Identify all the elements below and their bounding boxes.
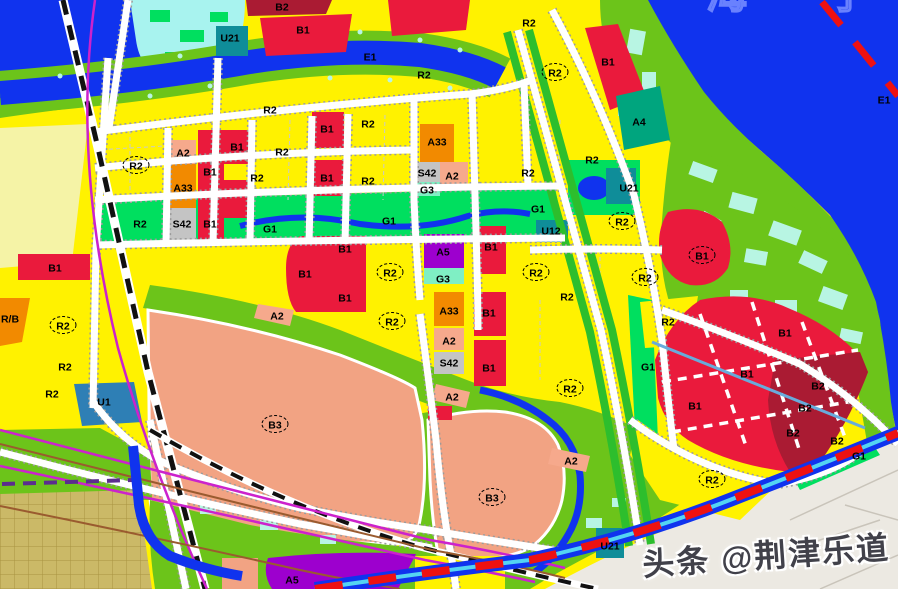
zone-label-A2: A2 (445, 392, 459, 404)
zone-label-B1: B1 (338, 293, 352, 305)
zone-label-G1: G1 (382, 216, 396, 228)
zone-label-B1: B1 (203, 167, 217, 179)
zone-label-B1: B1 (778, 328, 792, 340)
zone-label-A5: A5 (436, 247, 450, 259)
zone-label-B2: B2 (786, 428, 800, 440)
zone-label-G1: G1 (531, 204, 545, 216)
map-canvas: 海 宁 湖 U21B2B1E1R2R2R2B1A4E1R2R2A2B1B1R2B… (0, 0, 898, 589)
zone-label-A2: A2 (176, 148, 190, 160)
zone-label-B1: B1 (740, 369, 754, 381)
zone-label-B2: B2 (811, 381, 825, 393)
zone-label-A2: A2 (564, 456, 578, 468)
zone-label-G3: G3 (420, 185, 434, 197)
zone-label-U21: U21 (619, 183, 638, 195)
zone-label-R2: R2 (133, 219, 147, 231)
zone-label-R2: R2 (250, 173, 264, 185)
zone-label-G1: G1 (852, 451, 866, 463)
zone-label-B1: B1 (320, 124, 334, 136)
lake-name: 海 宁 湖 (706, 0, 898, 17)
zone-label-R2: R2 (705, 475, 719, 487)
zone-label-R-B: R/B (1, 314, 20, 326)
zone-label-B1: B1 (296, 25, 310, 37)
zone-label-B1: B1 (601, 57, 615, 69)
zone-label-A2: A2 (442, 336, 456, 348)
zone-label-B1: B1 (230, 142, 244, 154)
zone-label-R2: R2 (361, 176, 375, 188)
zone-label-B1: B1 (482, 363, 496, 375)
farmland-grid (0, 490, 152, 589)
zone-label-A33: A33 (439, 306, 458, 318)
zone-label-A33: A33 (173, 183, 192, 195)
zone-label-R2: R2 (275, 147, 289, 159)
zone-label-R2: R2 (560, 292, 574, 304)
zone-label-U21: U21 (220, 33, 239, 45)
zone-label-B1: B1 (203, 219, 217, 231)
zone-label-B1: B1 (482, 308, 496, 320)
zone-label-B1: B1 (48, 263, 62, 275)
zone-label-B2: B2 (798, 403, 812, 415)
zone-label-R2: R2 (417, 70, 431, 82)
zone-label-B1: B1 (338, 244, 352, 256)
zone-label-A5: A5 (285, 575, 299, 587)
zone-label-R2: R2 (263, 105, 277, 117)
zone-label-R2: R2 (563, 384, 577, 396)
zone-label-A2: A2 (445, 171, 459, 183)
zone-label-S42: S42 (418, 168, 437, 180)
zone-label-U21: U21 (600, 541, 619, 553)
zone-label-R2: R2 (129, 161, 143, 173)
zone-label-R2: R2 (385, 317, 399, 329)
zone-label-R2: R2 (58, 362, 72, 374)
zone-label-G1: G1 (641, 362, 655, 374)
zone-label-S42: S42 (173, 219, 192, 231)
zone-label-U12: U12 (541, 226, 560, 238)
zone-label-R2: R2 (585, 155, 599, 167)
zone-label-R2: R2 (56, 321, 70, 333)
zone-label-R2: R2 (638, 273, 652, 285)
zone-label-B2: B2 (275, 2, 289, 14)
zone-label-R2: R2 (383, 268, 397, 280)
zone-label-R2: R2 (522, 18, 536, 30)
zone-label-A2: A2 (270, 311, 284, 323)
zone-label-A33: A33 (427, 137, 446, 149)
zone-label-R2: R2 (45, 389, 59, 401)
zone-label-R2: R2 (361, 119, 375, 131)
zone-label-U1: U1 (97, 397, 111, 409)
zone-label-R2: R2 (661, 317, 675, 329)
zone-label-R2: R2 (521, 168, 535, 180)
zone-label-E1: E1 (364, 52, 377, 64)
zone-label-B1: B1 (695, 251, 709, 263)
zone-label-B1: B1 (298, 269, 312, 281)
zone-label-A4: A4 (632, 117, 646, 129)
zone-label-B1: B1 (484, 242, 498, 254)
zone-label-B2: B2 (830, 436, 844, 448)
zone-label-B3: B3 (485, 493, 499, 505)
zone-label-B1: B1 (320, 173, 334, 185)
zone-label-S42: S42 (440, 358, 459, 370)
zone-label-R2: R2 (548, 68, 562, 80)
zone-label-G3: G3 (436, 274, 450, 286)
planning-map: 海 宁 湖 U21B2B1E1R2R2R2B1A4E1R2R2A2B1B1R2B… (0, 0, 898, 589)
zone-label-B1: B1 (688, 401, 702, 413)
zone-label-B3: B3 (268, 420, 282, 432)
zone-label-R2: R2 (615, 217, 629, 229)
zone-label-R2: R2 (529, 268, 543, 280)
zone-label-E1: E1 (878, 95, 891, 107)
zone-label-G1: G1 (263, 224, 277, 236)
